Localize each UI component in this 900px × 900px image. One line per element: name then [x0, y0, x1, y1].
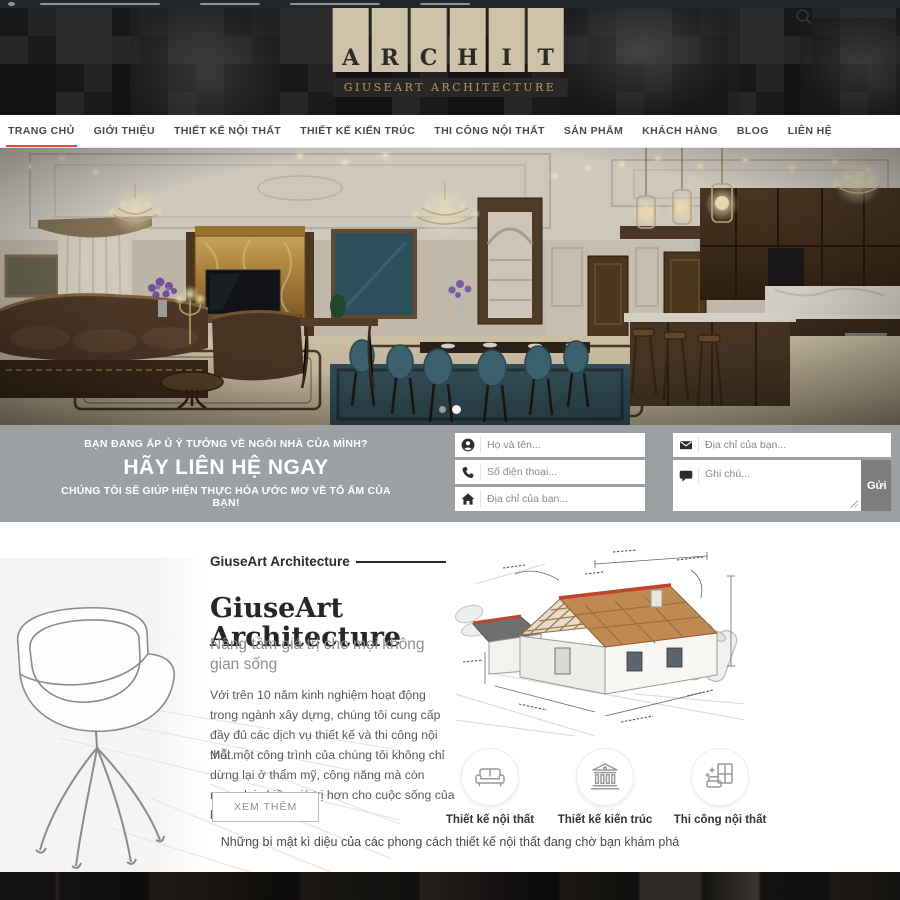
service-interior-construction[interactable]: Thi công nội thất [668, 748, 772, 826]
about-title-line1: GiuseArt [210, 593, 343, 624]
house-blueprint-image [455, 544, 745, 736]
name-input[interactable] [481, 433, 645, 457]
note-input[interactable] [699, 460, 861, 511]
logo-bar: H [450, 8, 486, 72]
closing-text: Những bí mật kì diệu của các phong cách … [0, 835, 900, 849]
nav-item-gioi-thieu[interactable]: GIỚI THIỆU [94, 125, 155, 137]
carousel-dots [0, 405, 900, 414]
service-label: Thi công nội thất [668, 814, 772, 826]
email-field [673, 433, 891, 457]
about-eyebrow: GiuseArt Architecture [210, 554, 446, 569]
site-header: A R C H I T GIUSEART ARCHITECTURE [0, 8, 900, 115]
cta-line3: CHÚNG TÔI SẼ GIÚP HIỆN THỰC HÓA ƯỚC MƠ V… [55, 485, 397, 509]
chair-sketch-background [0, 558, 212, 872]
cta-line1: BẠN ĐANG ẤP Ủ Ý TƯỞNG VỀ NGÔI NHÀ CỦA MÌ… [55, 438, 397, 450]
service-architecture-design[interactable]: Thiết kế kiến trúc [553, 748, 657, 826]
service-label: Thiết kế nội thất [438, 814, 542, 826]
building-icon [576, 748, 634, 806]
nav-item-blog[interactable]: BLOG [737, 125, 769, 137]
note-field: Gửi [673, 460, 891, 511]
mail-icon [673, 437, 699, 453]
logo-bar: C [411, 8, 447, 72]
carousel-dot-1[interactable] [439, 406, 446, 413]
main-nav: TRANG CHỦ GIỚI THIỆU THIẾT KẾ NỘI THẤT T… [0, 115, 900, 148]
logo-letter: T [538, 47, 554, 72]
cta-headline: HÃY LIÊN HỆ NGAY [55, 456, 397, 480]
logo-subtitle: GIUSEART ARCHITECTURE [333, 78, 568, 97]
page: A R C H I T GIUSEART ARCHITECTURE TRANG … [0, 0, 900, 900]
logo-bars: A R C H I T [333, 8, 568, 72]
nav-item-khach-hang[interactable]: KHÁCH HÀNG [642, 125, 718, 137]
nav-item-san-pham[interactable]: SẢN PHẨM [564, 125, 623, 137]
phone-input[interactable] [481, 460, 645, 484]
logo-letter: I [502, 47, 512, 72]
footer-image-strip [0, 872, 900, 900]
logo[interactable]: A R C H I T GIUSEART ARCHITECTURE [333, 8, 568, 97]
top-strip-text [200, 3, 260, 5]
service-interior-design[interactable]: Thiết kế nội thất [438, 748, 542, 826]
logo-letter: R [381, 47, 399, 72]
nav-item-lien-he[interactable]: LIÊN HỆ [788, 125, 832, 137]
top-strip-text [290, 3, 380, 5]
phone-icon [455, 464, 481, 480]
mosaic-photo [130, 8, 280, 115]
services-row: Thiết kế nội thất Thiết kế kiến trúc [438, 748, 772, 826]
hero-interior-image [0, 148, 900, 425]
search-icon[interactable] [794, 7, 814, 27]
read-more-button[interactable]: XEM THÊM [212, 792, 319, 822]
logo-letter: A [342, 47, 359, 72]
phone-field [455, 460, 645, 484]
mosaic-photo [800, 18, 900, 115]
top-strip-dot [8, 2, 15, 6]
logo-bar: A [333, 8, 369, 72]
about-section: GiuseArt Architecture GiuseArt Architect… [0, 522, 900, 872]
name-field [455, 433, 645, 457]
furniture-icon [691, 748, 749, 806]
nav-item-trang-chu[interactable]: TRANG CHỦ [8, 125, 75, 137]
sofa-icon [461, 748, 519, 806]
top-strip-text [40, 3, 160, 5]
logo-letter: H [457, 47, 478, 72]
nav-item-thiet-ke-kien-truc[interactable]: THIẾT KẾ KIẾN TRÚC [300, 125, 415, 137]
home-icon [455, 491, 481, 507]
mosaic-photo [560, 8, 740, 115]
carousel-dot-2[interactable] [452, 405, 461, 414]
address-input[interactable] [481, 487, 645, 511]
user-icon [455, 437, 481, 453]
cta-text: BẠN ĐANG ẤP Ủ Ý TƯỞNG VỀ NGÔI NHÀ CỦA MÌ… [55, 438, 397, 509]
logo-bar: I [489, 8, 525, 72]
address-field [455, 487, 645, 511]
cta-band: BẠN ĐANG ẤP Ủ Ý TƯỞNG VỀ NGÔI NHÀ CỦA MÌ… [0, 425, 900, 522]
about-eyebrow-label: GiuseArt Architecture [210, 554, 350, 569]
top-strip-text [420, 3, 470, 5]
nav-item-thiet-ke-noi-that[interactable]: THIẾT KẾ NỘI THẤT [174, 125, 281, 137]
hero-carousel [0, 148, 900, 425]
logo-letter: C [420, 47, 438, 72]
service-label: Thiết kế kiến trúc [553, 814, 657, 826]
top-strip [0, 0, 900, 8]
logo-bar: R [372, 8, 408, 72]
comment-icon [673, 468, 699, 484]
eyebrow-line [356, 561, 446, 563]
about-subtitle: Nâng tầm giá trị cho mọi không gian sống [210, 635, 450, 675]
nav-item-thi-cong-noi-that[interactable]: THI CÔNG NỘI THẤT [434, 125, 545, 137]
email-input[interactable] [699, 433, 891, 457]
submit-button[interactable]: Gửi [861, 460, 891, 511]
logo-bar: T [528, 8, 564, 72]
